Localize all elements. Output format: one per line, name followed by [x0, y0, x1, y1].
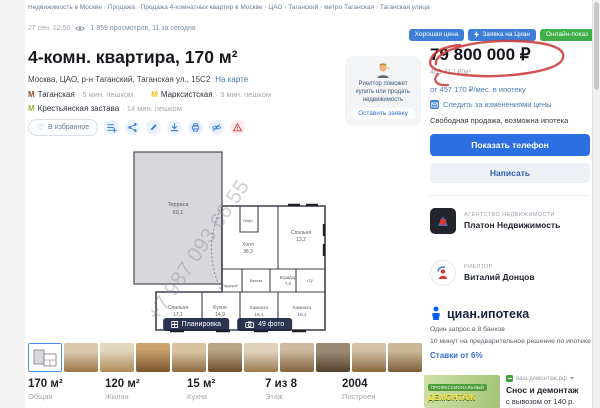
badge-online-show: Онлайн-показ — [540, 29, 594, 41]
mortgage-line-2: 10 минут на предварительное решение по и… — [430, 338, 592, 345]
share-button[interactable] — [125, 120, 140, 135]
photo-thumbnail[interactable] — [100, 343, 134, 372]
eye-icon — [75, 25, 85, 32]
scrollbar-thumb[interactable] — [594, 2, 599, 90]
breadcrumb: Недвижимость в МосквеПродажаПродажа 4-ко… — [28, 4, 588, 11]
metro-walk-time: 14 мин. пешком — [122, 104, 182, 113]
metro-item: М Таганская 5 мин. пешком — [28, 90, 133, 99]
realtor-helper-card: Риелтор поможет купить или продать недви… — [345, 56, 421, 126]
write-message-button[interactable]: Написать — [430, 163, 590, 183]
agent-person-icon — [374, 62, 392, 79]
sale-terms: Свободная продажа, возможна ипотека — [430, 116, 592, 125]
action-toolbar: ♡ В избранное — [28, 119, 245, 136]
svg-text:38,3: 38,3 — [243, 249, 253, 255]
photo-thumbnail[interactable] — [64, 343, 98, 372]
svg-text:Комната: Комната — [293, 305, 311, 310]
mortgage-link[interactable]: от 457 170 ₽/мес. в ипотеку — [430, 85, 592, 94]
breadcrumb-link[interactable]: Продажа 4-комнатных квартир в Москве — [135, 4, 263, 11]
svg-text:Гардероб: Гардероб — [222, 284, 238, 288]
helper-text: Риелтор поможет купить или продать недви… — [350, 81, 416, 104]
favorite-button[interactable]: ♡ В избранное — [28, 119, 98, 136]
divider — [430, 195, 590, 196]
stat-living-area: 120 м²Жилая — [105, 378, 187, 401]
chevron-down-icon[interactable] — [570, 377, 574, 380]
leave-request-button[interactable]: Оставить заявку — [351, 108, 415, 119]
envelope-icon — [430, 100, 439, 109]
realtor-card[interactable]: РИЕЛТОР Виталий Донцов — [430, 260, 592, 286]
metro-row-2: М Крестьянская застава 14 мин. пешком — [28, 104, 182, 113]
photo-thumbnail[interactable] — [136, 343, 170, 372]
cian-mortgage-brand: циан.ипотека — [447, 307, 529, 321]
hide-listing-button[interactable] — [209, 120, 224, 135]
metro-item: М Крестьянская застава 14 мин. пешком — [28, 104, 182, 113]
stat-floor: 7 из 8Этаж — [265, 378, 342, 401]
metro-icon: М — [28, 104, 35, 113]
breadcrumb-link[interactable]: Таганская улица — [374, 4, 430, 11]
photo-thumbnail[interactable] — [208, 343, 242, 372]
photo-thumbnail[interactable] — [280, 343, 314, 372]
realtor-type-label: РИЕЛТОР — [464, 264, 535, 270]
photo-thumbnail[interactable] — [352, 343, 386, 372]
metro-row-1: М Таганская 5 мин. пешком М Марксистская… — [28, 90, 271, 99]
ad-favicon — [506, 375, 513, 382]
thumbnail-floor-plan[interactable] — [28, 343, 62, 372]
stat-kitchen-area: 15 м²Кухня — [187, 378, 265, 401]
metro-icon: М — [28, 90, 35, 99]
realtor-name: Виталий Донцов — [464, 272, 535, 282]
cian-mortgage-widget[interactable]: циан.ипотека — [430, 306, 592, 321]
svg-text:Ванная: Ванная — [250, 279, 262, 283]
listing-meta: 27 сен, 12:50 1 859 просмотров, 11 за се… — [28, 25, 196, 32]
grid-icon — [171, 321, 178, 328]
price-per-m2: 469 412 ₽/м² — [430, 68, 592, 76]
track-price-button[interactable]: Следить за изменениями цены — [430, 100, 592, 109]
page-left-margin — [0, 0, 25, 408]
eye-off-icon — [211, 122, 222, 133]
breadcrumb-link[interactable]: метро Таганская — [318, 4, 374, 11]
page-title: 4-комн. квартира, 170 м² — [28, 47, 238, 68]
share-icon — [127, 122, 138, 133]
pencil-icon — [148, 122, 159, 133]
map-link[interactable]: На карте — [215, 75, 248, 84]
metro-walk-time: 3 мин. пешком — [216, 90, 271, 99]
svg-text:Коридор: Коридор — [280, 275, 297, 280]
ad-image: ПРОФЕССИОНАЛЬНЫЙ ДЕМОНТАЖ — [424, 375, 500, 408]
agency-logo — [430, 208, 456, 234]
metro-icon: М — [151, 90, 158, 99]
cian-person-icon — [430, 306, 442, 321]
lightning-icon — [474, 31, 479, 38]
svg-text:Спальня: Спальня — [291, 230, 311, 236]
metro-item: М Марксистская 3 мин. пешком — [151, 90, 271, 99]
download-pdf-button[interactable] — [167, 120, 182, 135]
badge-cian-request: Заявка на Циан — [468, 29, 536, 41]
compare-button[interactable] — [104, 120, 119, 135]
svg-text:Комната: Комната — [250, 305, 268, 310]
download-icon — [169, 122, 180, 133]
breadcrumb-link[interactable]: Таганский — [282, 4, 318, 11]
rates-link[interactable]: Ставки от 6% — [430, 351, 592, 360]
photo-thumbnail[interactable] — [316, 343, 350, 372]
photo-thumbnail-strip — [28, 343, 422, 372]
views-count: 1 859 просмотров, 11 за сегодня — [90, 25, 195, 32]
ad-site-row: ваш-демонтаж.рф — [506, 375, 578, 382]
svg-text:с/у: с/у — [307, 278, 313, 283]
photo-thumbnail[interactable] — [388, 343, 422, 372]
metro-station-link[interactable]: Крестьянская застава — [38, 104, 120, 113]
ad-title: Снос и демонтаж — [506, 385, 578, 395]
note-button[interactable] — [146, 120, 161, 135]
mortgage-line-1: Один запрос в 8 банков — [430, 326, 592, 333]
mini-plan-icon — [33, 348, 57, 368]
svg-text:13,2: 13,2 — [296, 237, 306, 243]
svg-text:Кухня: Кухня — [213, 305, 227, 311]
ad-image-line1: ПРОФЕССИОНАЛЬНЫЙ — [428, 384, 487, 391]
address-line: Москва, ЦАО, р-н Таганский, Таганская ул… — [28, 75, 248, 84]
ad-image-line2: ДЕМОНТАЖ — [428, 393, 475, 402]
floor-plan-drawing: Терраса 69,1 Лифт Холл 38,3 Спальня 13,2… — [120, 144, 335, 336]
breadcrumb-link[interactable]: Продажа — [102, 4, 135, 11]
metro-station-link[interactable]: Таганская — [38, 90, 75, 99]
svg-text:69,1: 69,1 — [173, 210, 184, 216]
breadcrumb-link[interactable]: ЦАО — [263, 4, 283, 11]
gallery-switcher: Планировка 49 фото — [163, 318, 293, 331]
warning-icon — [232, 122, 243, 133]
favorite-label: В избранное — [48, 124, 89, 131]
listing-badges: Хорошая цена Заявка на Циан Онлайн-показ — [409, 29, 594, 41]
svg-text:Холл: Холл — [242, 242, 254, 248]
realtor-logo — [430, 260, 456, 286]
print-button[interactable] — [188, 120, 203, 135]
track-price-label: Следить за изменениями цены — [443, 100, 552, 109]
price: 79 800 000 ₽ — [430, 45, 592, 65]
photo-thumbnail[interactable] — [172, 343, 206, 372]
camera-icon — [245, 321, 254, 328]
stat-total-area: 170 м²Общая — [28, 378, 105, 401]
heart-icon: ♡ — [37, 123, 44, 132]
compare-icon — [106, 122, 117, 133]
svg-text:16,1: 16,1 — [298, 312, 307, 317]
tab-photos[interactable]: 49 фото — [237, 318, 292, 331]
floor-plan-viewer[interactable]: Терраса 69,1 Лифт Холл 38,3 Спальня 13,2… — [120, 144, 335, 336]
ad-subtitle: с вывозом от 140 р. — [506, 397, 578, 406]
report-button[interactable] — [230, 120, 245, 135]
svg-text:Лифт: Лифт — [243, 218, 253, 223]
breadcrumb-link[interactable]: Недвижимость в Москве — [28, 4, 102, 11]
metro-station-link[interactable]: Марксистская — [161, 90, 213, 99]
ad-site-url: ваш-демонтаж.рф — [516, 376, 567, 382]
svg-text:Терраса: Терраса — [167, 202, 189, 208]
show-phone-button[interactable]: Показать телефон — [430, 134, 590, 156]
agency-name: Платон Недвижимость — [464, 220, 560, 230]
ad-banner[interactable]: ПРОФЕССИОНАЛЬНЫЙ ДЕМОНТАЖ ваш-демонтаж.р… — [424, 375, 592, 408]
agency-type-label: АГЕНТСТВО НЕДВИЖИМОСТИ — [464, 212, 560, 218]
key-stats-row: 170 м²Общая 120 м²Жилая 15 м²Кухня 7 из … — [28, 378, 375, 401]
photo-thumbnail[interactable] — [244, 343, 278, 372]
svg-text:15,1: 15,1 — [255, 312, 264, 317]
cian-listing-page: Недвижимость в МосквеПродажаПродажа 4-ко… — [0, 0, 600, 408]
agency-card[interactable]: АГЕНТСТВО НЕДВИЖИМОСТИ Платон Недвижимос… — [430, 208, 592, 234]
address-text: Москва, ЦАО, р-н Таганский, Таганская ул… — [28, 75, 210, 84]
printer-icon — [190, 122, 201, 133]
price-panel: 79 800 000 ₽ 469 412 ₽/м² от 457 170 ₽/м… — [430, 45, 592, 360]
stat-year-built: 2004Построен — [342, 378, 375, 401]
ad-text-block: ваш-демонтаж.рф Снос и демонтаж с вывозо… — [506, 375, 578, 408]
svg-text:7,6: 7,6 — [285, 281, 291, 286]
metro-walk-time: 5 мин. пешком — [78, 90, 133, 99]
tab-planirovka[interactable]: Планировка — [163, 318, 229, 331]
badge-good-price: Хорошая цена — [409, 29, 465, 41]
posted-date: 27 сен, 12:50 — [28, 25, 70, 32]
